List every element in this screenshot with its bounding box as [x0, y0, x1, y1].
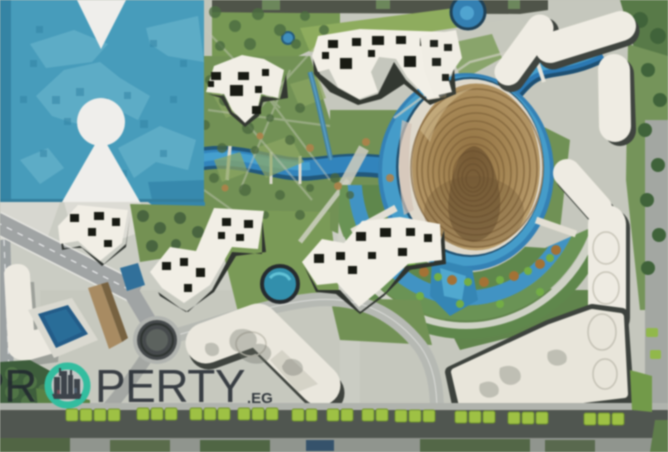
svg-text:.EG: .EG — [247, 390, 273, 407]
svg-text:PERTY: PERTY — [95, 360, 245, 412]
svg-text:PR: PR — [0, 360, 37, 412]
